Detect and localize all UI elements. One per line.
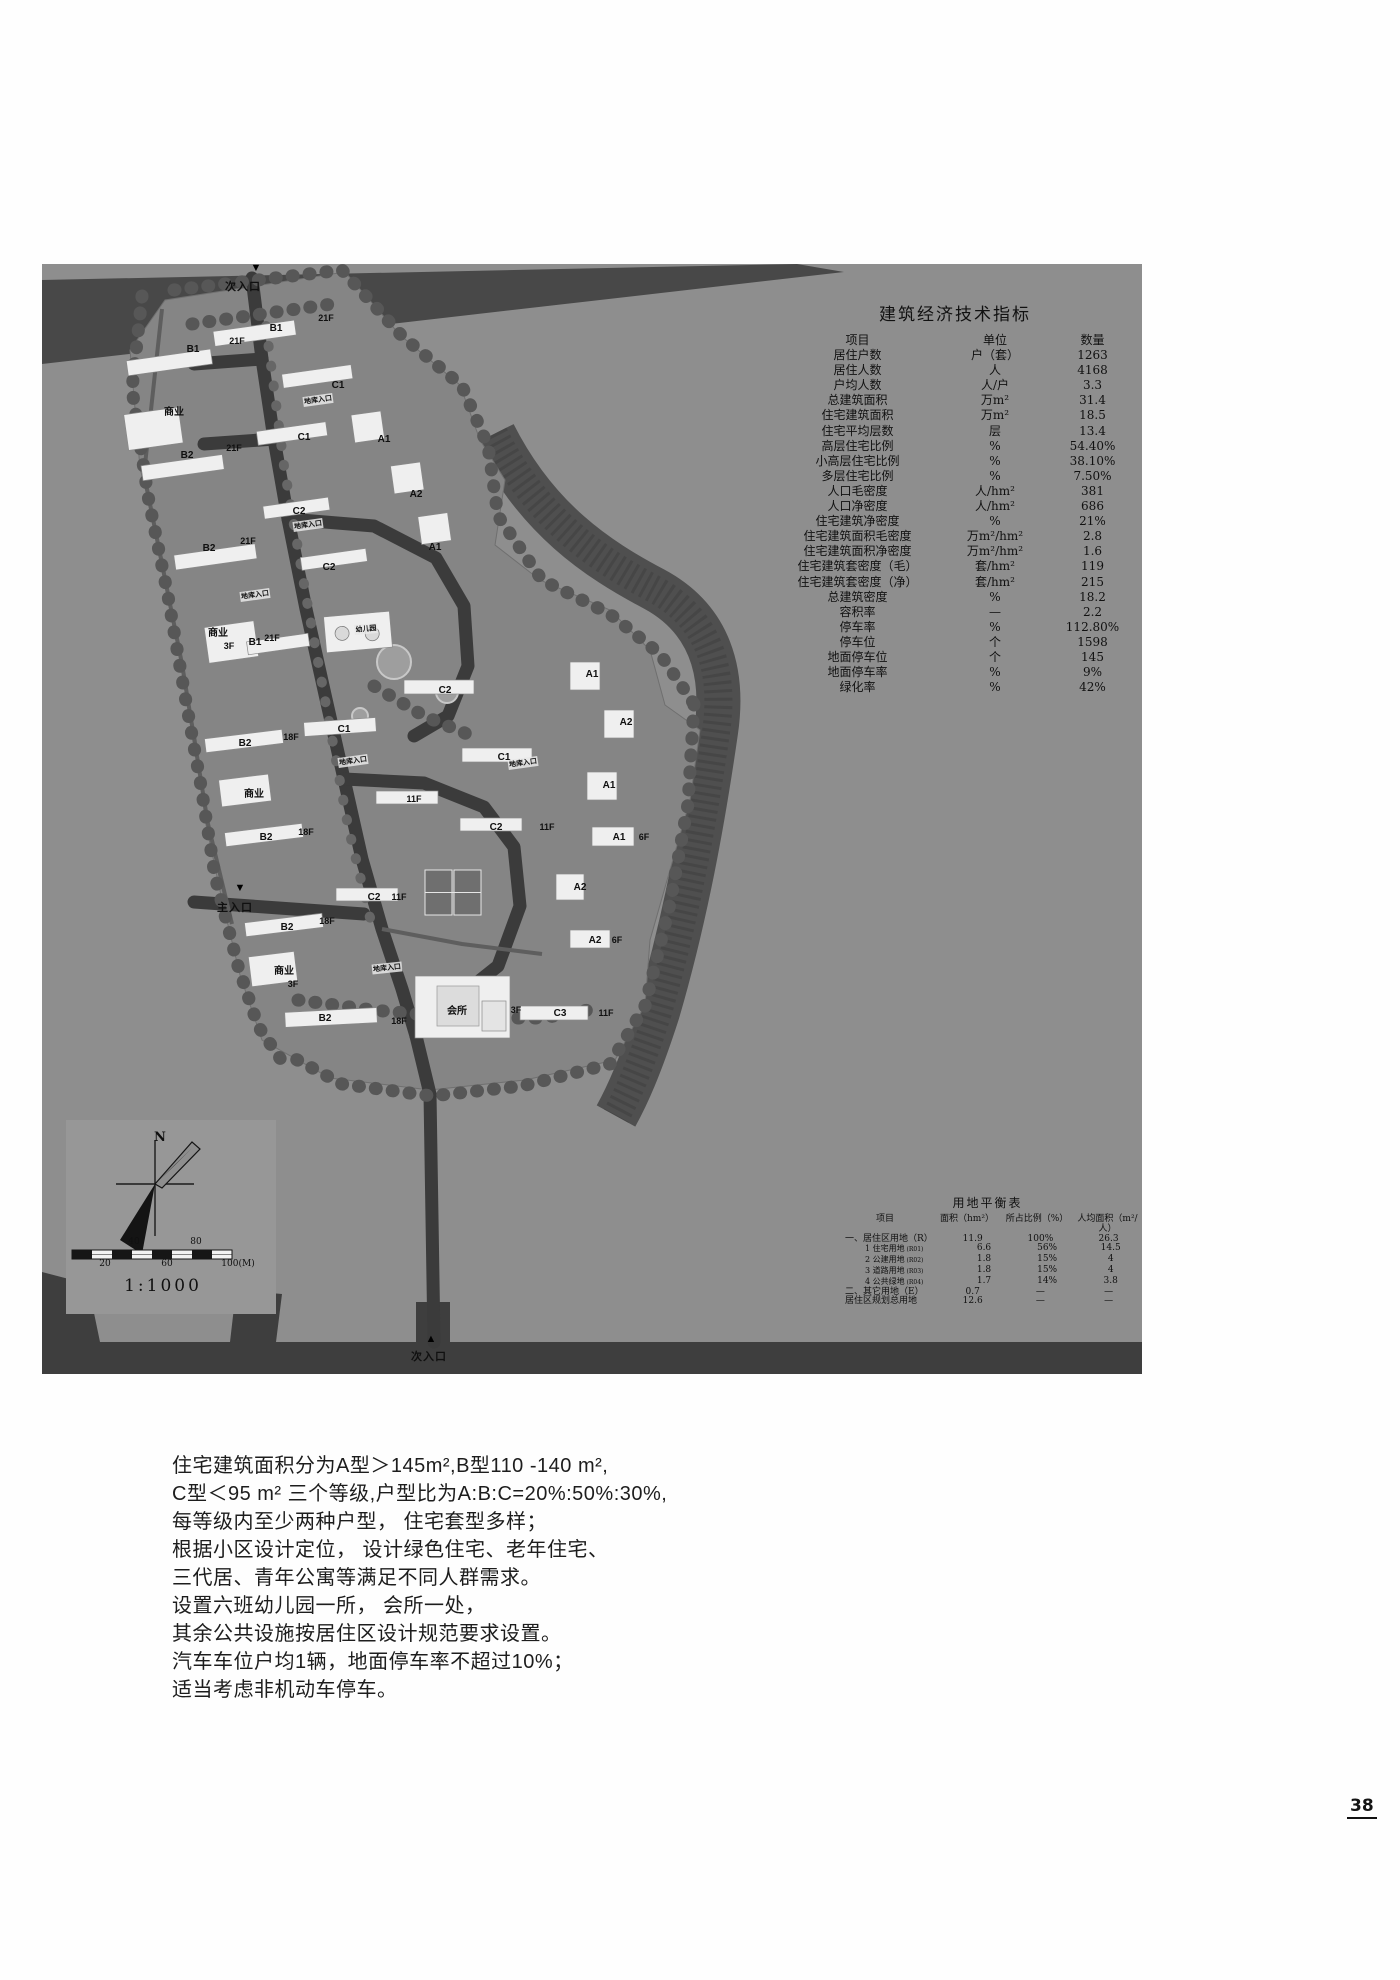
econ-table-row: 总建筑面积万m²31.4 [775,393,1135,408]
econ-table-row: 高层住宅比例%54.40% [775,439,1135,454]
econ-table-row: 住宅平均层数层13.4 [775,424,1135,439]
land-table-title: 用地平衡表 [835,1194,1140,1211]
land-cell-ratio: — [1004,1297,1078,1307]
econ-table-row: 住宅建筑净密度%21% [775,514,1135,529]
econ-header-qty: 数量 [1050,333,1135,348]
econ-cell: 4168 [1050,363,1135,378]
econ-table-row: 居住人数人4168 [775,363,1135,378]
econ-cell: 套/hm² [940,559,1050,574]
bottom-road [42,1342,1142,1374]
econ-cell: — [940,605,1050,620]
econ-cell: % [940,665,1050,680]
econ-cell: 31.4 [1050,393,1135,408]
econ-cell: 个 [940,635,1050,650]
econ-cell: 户均人数 [775,378,940,393]
econ-cell: 住宅建筑套密度（毛） [775,559,940,574]
econ-cell: 2.2 [1050,605,1135,620]
econ-table-header: 项目 单位 数量 [775,333,1135,348]
econ-cell: 居住人数 [775,363,940,378]
econ-cell: 地面停车率 [775,665,940,680]
land-table-header: 项目 面积（hm²） 所占比例（%） 人均面积（m²/人） [835,1215,1140,1235]
econ-table-row: 地面停车率%9% [775,665,1135,680]
econ-table-row: 人口毛密度人/hm²381 [775,484,1135,499]
econ-cell: 119 [1050,559,1135,574]
econ-cell: 1598 [1050,635,1135,650]
econ-cell: 户（套） [940,348,1050,363]
econ-table-body: 居住户数户（套）1263居住人数人4168户均人数人/户3.3总建筑面积万m²3… [775,348,1135,695]
econ-cell: 9% [1050,665,1135,680]
land-table-row: 居住区规划总用地12.6—— [835,1297,1140,1307]
econ-cell: 人/户 [940,378,1050,393]
econ-cell: % [940,514,1050,529]
land-cell-item: 居住区规划总用地 [835,1297,942,1307]
econ-cell: 38.10% [1050,454,1135,469]
econ-cell: 住宅建筑面积毛密度 [775,529,940,544]
kindergarten-building [324,611,393,653]
compass-scale-panel [66,1120,276,1314]
econ-cell: % [940,590,1050,605]
econ-cell: 住宅建筑面积 [775,408,940,423]
land-table-row: 4 公共绿地 (R04)1.714%3.8 [835,1277,1140,1288]
econ-cell: % [940,680,1050,695]
econ-cell: % [940,620,1050,635]
econ-cell: 1263 [1050,348,1135,363]
notes-line: C型＜95 m² 三个等级,户型比为A:B:C=20%:50%:30%, [172,1480,667,1508]
econ-table: 建筑经济技术指标 项目 单位 数量 居住户数户（套）1263居住人数人4168户… [775,300,1135,695]
econ-cell: 绿化率 [775,680,940,695]
econ-cell: 总建筑密度 [775,590,940,605]
land-cell-per: — [1077,1297,1140,1307]
econ-cell: 21% [1050,514,1135,529]
econ-cell: 13.4 [1050,424,1135,439]
econ-cell: 停车率 [775,620,940,635]
econ-table-row: 户均人数人/户3.3 [775,378,1135,393]
econ-table-title: 建筑经济技术指标 [775,300,1135,325]
econ-cell: % [940,439,1050,454]
econ-table-row: 容积率—2.2 [775,605,1135,620]
econ-cell: 3.3 [1050,378,1135,393]
land-cell-item: 1 住宅用地 (R01) [835,1244,955,1255]
econ-table-row: 住宅建筑套密度（净）套/hm²215 [775,575,1135,590]
econ-cell: 居住户数 [775,348,940,363]
page-number: 38 [1347,1796,1377,1819]
econ-cell: 7.50% [1050,469,1135,484]
econ-table-row: 总建筑密度%18.2 [775,590,1135,605]
land-cell-area: 1.7 [955,1277,1013,1288]
econ-table-row: 停车率%112.80% [775,620,1135,635]
econ-header-item: 项目 [775,333,940,348]
document-page: 建筑经济技术指标 项目 单位 数量 居住户数户（套）1263居住人数人4168户… [0,0,1400,1980]
econ-table-row: 居住户数户（套）1263 [775,348,1135,363]
econ-cell: 人 [940,363,1050,378]
econ-cell: 686 [1050,499,1135,514]
econ-cell: 多层住宅比例 [775,469,940,484]
notes-line: 设置六班幼儿园一所， 会所一处， [172,1592,667,1620]
econ-cell: 高层住宅比例 [775,439,940,454]
land-cell-ratio: 14% [1013,1277,1082,1288]
notes-line: 住宅建筑面积分为A型＞145m²,B型110 -140 m², [172,1452,667,1480]
econ-cell: 万m² [940,393,1050,408]
econ-table-row: 住宅建筑面积万m²18.5 [775,408,1135,423]
econ-cell: 层 [940,424,1050,439]
notes-line: 汽车车位户均1辆，地面停车率不超过10%； [172,1648,667,1676]
econ-cell: 145 [1050,650,1135,665]
econ-cell: 停车位 [775,635,940,650]
econ-cell: 人口毛密度 [775,484,940,499]
econ-cell: 住宅建筑面积净密度 [775,544,940,559]
econ-cell: 人/hm² [940,499,1050,514]
econ-cell: % [940,469,1050,484]
econ-cell: 个 [940,650,1050,665]
land-table: 用地平衡表 项目 面积（hm²） 所占比例（%） 人均面积（m²/人） 一、居住… [835,1194,1140,1307]
land-cell-item: 一、居住区用地（R） [835,1235,942,1245]
econ-cell: 住宅建筑净密度 [775,514,940,529]
econ-cell: % [940,454,1050,469]
notes-line: 适当考虑非机动车停车。 [172,1676,667,1704]
land-cell-code: (R04) [905,1279,924,1286]
econ-cell: 住宅平均层数 [775,424,940,439]
clubhouse-building [415,976,510,1038]
econ-cell: 住宅建筑套密度（净） [775,575,940,590]
econ-table-row: 住宅建筑套密度（毛）套/hm²119 [775,559,1135,574]
econ-table-row: 地面停车位个145 [775,650,1135,665]
econ-cell: 1.6 [1050,544,1135,559]
econ-cell: 地面停车位 [775,650,940,665]
econ-cell: 万m²/hm² [940,529,1050,544]
econ-cell: 18.2 [1050,590,1135,605]
land-table-body: 一、居住区用地（R）11.9100%26.31 住宅用地 (R01)6.656%… [835,1235,1140,1308]
econ-cell: 人/hm² [940,484,1050,499]
econ-cell: 381 [1050,484,1135,499]
econ-cell: 54.40% [1050,439,1135,454]
notes-line: 其余公共设施按居住区设计规范要求设置。 [172,1620,667,1648]
econ-cell: 215 [1050,575,1135,590]
econ-cell: 42% [1050,680,1135,695]
design-notes: 住宅建筑面积分为A型＞145m²,B型110 -140 m²,C型＜95 m² … [172,1452,667,1704]
notes-line: 每等级内至少两种户型， 住宅套型多样； [172,1508,667,1536]
econ-cell: 18.5 [1050,408,1135,423]
econ-cell: 万m²/hm² [940,544,1050,559]
notes-line: 三代居、青年公寓等满足不同人群需求。 [172,1564,667,1592]
land-cell-item: 2 公建用地 (R02) [835,1255,955,1266]
econ-cell: 112.80% [1050,620,1135,635]
econ-table-row: 住宅建筑面积毛密度万m²/hm²2.8 [775,529,1135,544]
econ-header-unit: 单位 [940,333,1050,348]
land-cell-area: 11.9 [942,1235,1004,1245]
land-cell-code: (R01) [905,1246,924,1253]
land-cell-item: 3 道路用地 (R03) [835,1266,955,1277]
land-cell-code: (R03) [905,1268,924,1275]
econ-cell: 万m² [940,408,1050,423]
econ-table-row: 人口净密度人/hm²686 [775,499,1135,514]
econ-table-row: 绿化率%42% [775,680,1135,695]
notes-line: 根据小区设计定位， 设计绿色住宅、老年住宅、 [172,1536,667,1564]
land-cell-area: 12.6 [942,1297,1004,1307]
econ-table-row: 住宅建筑面积净密度万m²/hm²1.6 [775,544,1135,559]
econ-table-row: 停车位个1598 [775,635,1135,650]
land-cell-code: (R02) [905,1257,924,1264]
land-cell-item: 4 公共绿地 (R04) [835,1277,955,1288]
econ-cell: 2.8 [1050,529,1135,544]
econ-table-row: 多层住宅比例%7.50% [775,469,1135,484]
econ-cell: 套/hm² [940,575,1050,590]
econ-cell: 小高层住宅比例 [775,454,940,469]
econ-cell: 人口净密度 [775,499,940,514]
econ-table-row: 小高层住宅比例%38.10% [775,454,1135,469]
econ-cell: 总建筑面积 [775,393,940,408]
econ-cell: 容积率 [775,605,940,620]
land-cell-per: 3.8 [1081,1277,1140,1288]
